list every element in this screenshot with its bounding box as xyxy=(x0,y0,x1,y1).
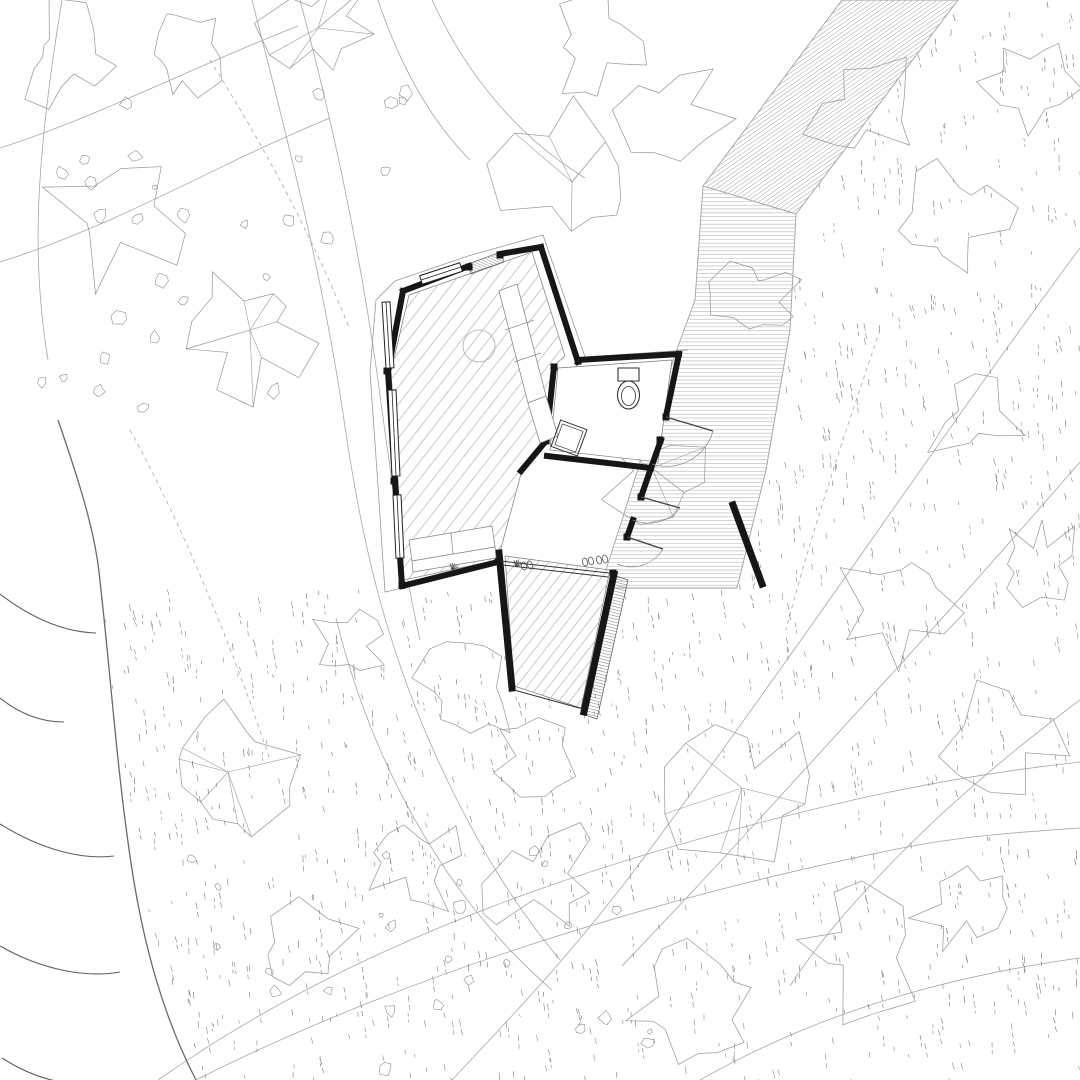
tree-branch-spoke xyxy=(290,28,318,69)
grass-dash xyxy=(743,623,744,627)
grass-dash xyxy=(570,769,571,772)
grass-dash xyxy=(951,433,953,439)
grass-dash xyxy=(697,930,698,933)
grass-dash xyxy=(525,718,526,722)
grass-dash xyxy=(491,731,492,738)
grass-dash xyxy=(453,1030,454,1035)
grass-dash xyxy=(199,796,201,803)
grass-dash xyxy=(656,672,657,679)
grass-dash xyxy=(704,885,706,892)
grass-dash xyxy=(372,1020,374,1026)
grass-dash xyxy=(750,756,751,758)
grass-dash xyxy=(606,871,607,874)
grass-dash xyxy=(1045,984,1046,987)
grass-dash xyxy=(275,663,276,669)
grass-dash xyxy=(571,885,572,892)
tree-branch-spoke xyxy=(571,182,572,231)
grass-dash xyxy=(743,1023,744,1029)
grass-dash xyxy=(767,951,768,956)
grass-dash xyxy=(243,923,244,930)
grass-dash xyxy=(464,694,465,700)
grass-dash xyxy=(960,1044,961,1048)
grass-dash xyxy=(758,743,759,747)
grass-dash xyxy=(297,649,298,653)
grass-dash xyxy=(802,865,803,868)
grass-dash xyxy=(407,636,408,641)
grass-dash xyxy=(888,641,889,644)
grass-dash xyxy=(1027,86,1028,90)
grass-dash xyxy=(970,526,971,529)
grass-dash xyxy=(725,1054,726,1058)
grass-dash xyxy=(1003,35,1004,41)
grass-dash xyxy=(684,653,685,656)
grass-dash xyxy=(941,140,942,143)
grass-dash xyxy=(932,781,933,785)
grass-dash xyxy=(870,760,872,765)
tree-branch-spoke xyxy=(250,322,277,330)
grass-dash xyxy=(752,743,753,748)
grass-dash xyxy=(296,758,297,762)
grass-dash xyxy=(1005,33,1006,36)
grass-dash xyxy=(251,673,252,679)
grass-dash xyxy=(591,748,592,754)
grass-dash xyxy=(497,729,498,732)
grass-dash xyxy=(358,1012,359,1017)
grass-dash xyxy=(1016,532,1017,535)
grass-dash xyxy=(961,1063,962,1070)
grass-dash xyxy=(598,788,599,792)
shoe xyxy=(602,554,609,563)
grass-dash xyxy=(573,894,574,897)
grass-dash xyxy=(688,715,690,721)
grass-dash xyxy=(495,937,496,942)
grass-dash xyxy=(463,748,464,754)
grass-dash xyxy=(744,790,745,796)
grass-dash xyxy=(818,893,819,897)
grass-dash xyxy=(357,952,358,956)
grass-dash xyxy=(177,832,178,836)
grass-dash xyxy=(949,199,950,203)
grass-dash xyxy=(873,495,874,499)
grass-dash xyxy=(430,854,431,858)
grass-dash xyxy=(836,367,837,371)
grass-dash xyxy=(591,977,592,981)
grass-dash xyxy=(1046,918,1048,924)
grass-dash xyxy=(143,761,144,767)
grass-dash xyxy=(896,918,897,925)
grass-dash xyxy=(795,471,796,477)
grass-dash xyxy=(724,921,725,924)
grass-dash xyxy=(923,401,924,407)
grass-dash xyxy=(973,115,974,119)
grass-dash xyxy=(478,951,479,958)
grass-dash xyxy=(414,807,415,810)
grass-dash xyxy=(893,517,895,524)
grass-dash xyxy=(1066,755,1067,762)
grass-dash xyxy=(552,791,553,796)
grass-dash xyxy=(999,966,1000,971)
grass-dash xyxy=(671,865,673,871)
grass-dash xyxy=(430,749,431,756)
tree-branch-spoke xyxy=(250,330,253,407)
grass-dash xyxy=(315,850,316,855)
grass-dash xyxy=(464,942,465,949)
grass-dash xyxy=(307,677,308,681)
stone xyxy=(434,999,444,1009)
wall-junction xyxy=(391,478,398,485)
grass-dash xyxy=(745,774,747,781)
grass-dash xyxy=(930,964,931,969)
tree-canopy xyxy=(412,642,510,734)
grass-dash xyxy=(245,934,246,940)
grass-dash xyxy=(499,1073,500,1080)
grass-dash xyxy=(897,374,898,377)
grass-dash xyxy=(984,186,985,193)
grass-dash xyxy=(602,826,604,832)
grass-dash xyxy=(790,1032,791,1037)
grass-dash xyxy=(1047,602,1049,607)
grass-dash xyxy=(252,690,253,693)
grass-dash xyxy=(506,754,507,758)
tree-branch-spoke xyxy=(183,748,228,772)
grass-dash xyxy=(814,315,815,318)
grass-dash xyxy=(341,957,342,960)
grass-dash xyxy=(769,480,770,485)
grass-dash xyxy=(349,1034,350,1039)
grass-dash xyxy=(687,749,688,753)
contour-line xyxy=(158,762,1080,1080)
grass-dash xyxy=(1000,813,1001,818)
grass-dash xyxy=(223,752,224,758)
grass-dash xyxy=(974,1001,975,1004)
grass-dash xyxy=(616,705,617,711)
stone xyxy=(648,1029,652,1034)
grass-dash xyxy=(1075,391,1076,395)
grass-dash xyxy=(603,845,604,849)
grass-dash xyxy=(201,661,202,664)
grass-dash xyxy=(516,697,517,700)
grass-dash xyxy=(999,328,1000,334)
grass-dash xyxy=(405,1050,406,1054)
grass-dash xyxy=(397,977,398,980)
grass-dash xyxy=(356,791,357,795)
grass-dash xyxy=(762,660,763,663)
grass-dash xyxy=(779,485,780,492)
grass-dash xyxy=(1038,993,1039,999)
grass-dash xyxy=(1067,63,1068,68)
grass-dash xyxy=(900,570,902,577)
grass-dash xyxy=(169,598,170,603)
grass-dash xyxy=(816,507,817,511)
grass-dash xyxy=(732,719,733,723)
grass-dash xyxy=(794,670,795,677)
grass-dash xyxy=(145,719,146,726)
grass-dash xyxy=(472,753,473,760)
grass-dash xyxy=(1013,695,1014,699)
grass-dash xyxy=(259,1009,260,1015)
grass-dash xyxy=(181,813,182,816)
grass-dash xyxy=(196,903,197,909)
grass-dash xyxy=(1044,977,1045,981)
grass-dash xyxy=(358,959,359,962)
grass-dash xyxy=(767,658,768,664)
grass-dash xyxy=(1033,799,1034,802)
grass-dash xyxy=(902,580,904,585)
stone xyxy=(454,901,466,914)
grass-dash xyxy=(800,415,801,420)
grass-dash xyxy=(669,857,670,860)
grass-dash xyxy=(634,741,635,746)
grass-dash xyxy=(374,934,375,937)
grass-dash xyxy=(1019,978,1020,981)
grass-dash xyxy=(234,962,235,967)
grass-dash xyxy=(154,832,155,836)
grass-dash xyxy=(982,797,984,804)
grass-dash xyxy=(882,412,883,417)
grass-dash xyxy=(848,628,849,632)
grass-dash xyxy=(980,670,981,673)
grass-dash xyxy=(920,63,921,67)
grass-dash xyxy=(843,184,844,189)
grass-dash xyxy=(962,545,964,551)
tree-canopy xyxy=(928,374,1025,453)
grass-dash xyxy=(694,1019,695,1025)
grass-dash xyxy=(952,1063,954,1070)
grass-dash xyxy=(572,962,574,969)
stone xyxy=(283,215,294,227)
grass-dash xyxy=(884,195,885,199)
grass-dash xyxy=(843,324,845,330)
grass-dash xyxy=(886,633,887,637)
grass-dash xyxy=(1042,33,1043,37)
grass-dash xyxy=(321,902,323,909)
tree-branch-spoke xyxy=(244,301,250,330)
grass-dash xyxy=(489,799,491,805)
grass-dash xyxy=(691,992,693,999)
grass-dash xyxy=(366,983,367,989)
grass-dash xyxy=(858,332,859,336)
grass-dash xyxy=(240,621,241,625)
grass-dash xyxy=(605,864,606,868)
grass-dash xyxy=(1026,1011,1027,1016)
tree-canopy xyxy=(612,69,736,161)
grass-dash xyxy=(804,685,805,688)
grass-dash xyxy=(812,564,813,569)
grass-dash xyxy=(733,965,734,972)
grass-dash xyxy=(243,749,244,756)
stone xyxy=(60,374,68,381)
grass-dash xyxy=(986,608,987,614)
grass-dash xyxy=(883,972,884,977)
grass-dash xyxy=(1011,1023,1012,1030)
grass-dash xyxy=(783,970,784,976)
grass-dash xyxy=(273,878,274,882)
grass-dash xyxy=(279,778,280,783)
grass-dash xyxy=(798,405,800,412)
grass-dash xyxy=(548,1004,549,1010)
grass-dash xyxy=(968,426,969,431)
tree-branch-spoke xyxy=(572,142,606,182)
grass-dash xyxy=(964,115,965,119)
grass-dash xyxy=(873,481,874,485)
grass-dash xyxy=(223,759,224,762)
grass-dash xyxy=(386,781,387,786)
grass-dash xyxy=(843,252,844,257)
grass-dash xyxy=(1023,503,1024,509)
grass-dash xyxy=(206,1027,207,1034)
tree-canopy xyxy=(939,680,1070,795)
grass-dash xyxy=(470,816,471,822)
grass-dash xyxy=(521,989,523,996)
grass-dash xyxy=(1054,68,1055,74)
grass-dash xyxy=(928,777,929,780)
grass-dash xyxy=(778,1070,780,1076)
grass-dash xyxy=(603,730,605,735)
grass-dash xyxy=(145,646,146,649)
grass-dash xyxy=(423,607,424,613)
grass-dash xyxy=(820,912,821,917)
grass-dash xyxy=(925,308,926,314)
grass-dash xyxy=(1056,404,1057,410)
grass-dash xyxy=(997,481,998,485)
grass-dash xyxy=(597,984,598,988)
grass-dash xyxy=(154,788,155,791)
grass-dash xyxy=(1048,875,1049,879)
grass-dash xyxy=(786,638,787,644)
grass-dash xyxy=(1014,1049,1015,1053)
tree-branch-spoke xyxy=(665,788,742,814)
grass-dash xyxy=(830,453,831,459)
grass-dash xyxy=(306,983,307,988)
stone xyxy=(187,855,197,862)
grass-dash xyxy=(616,1072,617,1078)
grass-dash xyxy=(431,599,432,603)
grass-dash xyxy=(823,882,824,886)
grass-dash xyxy=(803,475,804,477)
grass-dash xyxy=(239,613,240,618)
grass-dash xyxy=(781,743,782,748)
grass-dash xyxy=(962,693,963,698)
grass-dash xyxy=(407,811,408,817)
grass-dash xyxy=(840,351,841,356)
contour-line xyxy=(790,700,1080,986)
grass-dash xyxy=(431,861,432,864)
grass-dash xyxy=(692,612,693,617)
grass-dash xyxy=(908,677,909,682)
grass-dash xyxy=(895,636,896,641)
grass-dash xyxy=(933,431,934,438)
tree-branch-spoke xyxy=(250,294,273,330)
grass-dash xyxy=(653,705,654,711)
grass-dash xyxy=(167,589,169,595)
grass-dash xyxy=(895,527,897,533)
grass-dash xyxy=(779,660,780,663)
grass-dash xyxy=(823,435,824,441)
tree-canopy xyxy=(664,725,809,862)
wall-junction xyxy=(497,252,504,259)
grass-dash xyxy=(362,1011,363,1016)
grass-dash xyxy=(134,649,135,654)
grass-dash xyxy=(311,1038,312,1044)
stone xyxy=(381,167,390,176)
stone xyxy=(132,213,143,224)
grass-dash xyxy=(687,859,688,865)
grass-dash xyxy=(362,694,363,699)
grass-dash xyxy=(309,957,311,963)
grass-dash xyxy=(124,623,125,629)
grass-dash xyxy=(1023,962,1024,966)
grass-dash xyxy=(1019,900,1021,906)
grass-dash xyxy=(638,1043,639,1047)
stone xyxy=(240,220,247,229)
grass-dash xyxy=(403,732,404,737)
stone xyxy=(128,151,143,162)
grass-dash xyxy=(954,700,955,705)
grass-dash xyxy=(1038,502,1039,505)
grass-dash xyxy=(856,887,857,890)
grass-dash xyxy=(196,735,198,741)
stone xyxy=(598,1011,612,1025)
grass-dash xyxy=(964,553,965,558)
grass-dash xyxy=(881,995,882,1001)
grass-dash xyxy=(651,615,652,621)
grass-dash xyxy=(858,752,859,757)
grass-dash xyxy=(1071,13,1073,20)
grass-dash xyxy=(476,716,477,721)
grass-dash xyxy=(752,575,753,581)
grass-dash xyxy=(335,870,336,875)
grass-dash xyxy=(1069,19,1070,23)
grass-dash xyxy=(910,751,912,758)
stone xyxy=(385,920,396,932)
stone xyxy=(178,297,188,305)
grass-dash xyxy=(583,964,585,970)
grass-dash xyxy=(924,503,925,509)
grass-dash xyxy=(958,902,959,904)
grass-dash xyxy=(444,1064,445,1070)
grass-dash xyxy=(470,915,472,921)
grass-dash xyxy=(217,1019,218,1026)
grass-dash xyxy=(903,408,904,415)
grass-dash xyxy=(862,504,863,509)
grass-dash xyxy=(480,674,481,678)
grass-dash xyxy=(842,381,844,387)
tree-canopy xyxy=(559,0,646,96)
grass-dash xyxy=(273,674,274,677)
grass-dash xyxy=(321,686,323,693)
grass-dash xyxy=(972,342,974,349)
grass-dash xyxy=(171,901,172,904)
grass-dash xyxy=(398,984,399,987)
grass-dash xyxy=(585,1076,586,1080)
grass-dash xyxy=(882,970,883,977)
grass-dash xyxy=(942,732,943,735)
grass-dash xyxy=(377,849,378,852)
grass-dash xyxy=(248,975,249,979)
grass-dash xyxy=(329,719,330,724)
grass-dash xyxy=(240,667,241,671)
grass-dash xyxy=(779,980,780,987)
grass-dash xyxy=(173,975,174,980)
grass-dash xyxy=(750,687,751,691)
grass-dash xyxy=(1024,894,1025,899)
grass-dash xyxy=(664,704,665,708)
grass-dash xyxy=(588,719,589,724)
grass-dash xyxy=(950,892,951,895)
stone xyxy=(177,208,190,223)
tree-branch-spoke xyxy=(228,755,301,772)
grass-dash xyxy=(228,879,229,886)
